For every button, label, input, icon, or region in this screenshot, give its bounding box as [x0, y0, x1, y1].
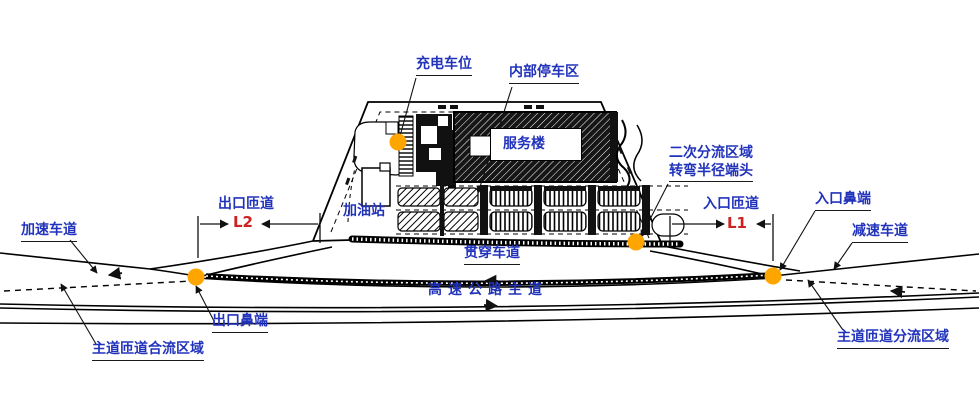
secondary-diverge-marker	[628, 234, 645, 251]
traffic-arrow-right-lane	[891, 291, 905, 292]
exit-ramp-outer-edge	[150, 241, 313, 269]
label-secondary-diverge-line1: 二次分流区域	[669, 144, 753, 162]
label-through-lane: 贯穿车道	[464, 245, 520, 265]
service-area-diagram: 加速车道 出口匝道 L2 充电车位 内部停车区 服务楼 加油站 二次分流区域 转…	[0, 0, 979, 400]
label-diverge-area: 主道匝道分流区域	[837, 329, 949, 349]
label-gas-station: 加油站	[343, 203, 385, 221]
traffic-arrow-center-bottom	[484, 305, 497, 306]
dimension-l1	[670, 214, 773, 261]
label-secondary-diverge: 二次分流区域 转弯半径端头	[669, 144, 753, 182]
gas-station-building	[362, 163, 390, 206]
turnaround-pad	[652, 214, 684, 236]
car-stalls	[544, 212, 586, 231]
service-building-label-box: 服务楼	[490, 128, 582, 161]
leader-merge-area	[61, 284, 96, 344]
label-exit-ramp: 出口匝道	[218, 196, 274, 214]
truck-stalls	[444, 188, 478, 206]
left-lane-dash	[4, 281, 192, 291]
label-l2: L2	[233, 213, 253, 232]
label-decel-lane: 减速车道	[852, 223, 908, 243]
charging-spot-marker	[390, 134, 407, 151]
label-entrance-nose: 入口鼻端	[815, 191, 871, 211]
label-charging-spot: 充电车位	[416, 56, 472, 76]
exit-nose-marker	[188, 269, 205, 286]
car-stalls	[490, 212, 532, 231]
leader-entrance-nose	[780, 211, 815, 270]
accel-lane-outer-edge	[0, 253, 196, 276]
label-service-building: 服务楼	[503, 136, 545, 154]
label-l1: L1	[727, 214, 747, 233]
label-internal-parking: 内部停车区	[509, 64, 579, 84]
truck-stalls	[444, 212, 478, 231]
leader-accel-lane	[70, 240, 97, 273]
truck-stalls	[398, 188, 440, 206]
truck-stalls	[398, 212, 440, 231]
label-secondary-diverge-line2: 转弯半径端头	[669, 162, 753, 182]
label-merge-area: 主道匝道合流区域	[92, 341, 204, 361]
label-highway-main: 高速公路主道	[428, 282, 548, 300]
decel-lane-outer-edge	[773, 254, 979, 276]
label-entrance-ramp: 入口匝道	[703, 196, 759, 214]
label-exit-nose: 出口鼻端	[212, 313, 268, 333]
traffic-arrow-left-lane	[109, 273, 122, 275]
landscaping	[617, 120, 642, 188]
internal-parking-area	[396, 184, 688, 236]
leader-decel-lane	[834, 243, 852, 269]
car-stalls	[598, 212, 640, 231]
exit-ramp-inner-edge	[198, 247, 332, 277]
entrance-nose-marker	[765, 268, 782, 285]
label-accel-lane: 加速车道	[21, 222, 77, 242]
leader-diverge-area	[808, 280, 843, 330]
auxiliary-buildings	[416, 114, 456, 198]
